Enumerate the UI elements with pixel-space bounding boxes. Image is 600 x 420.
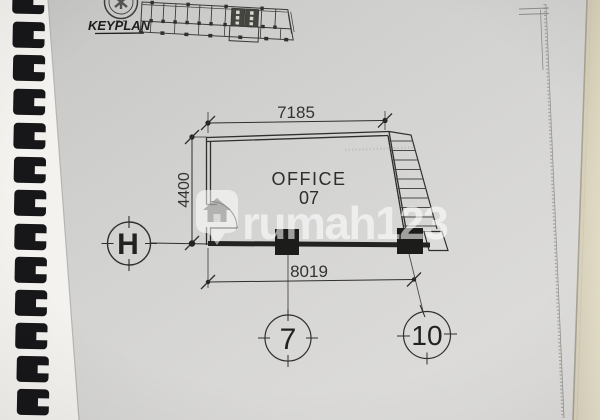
photo-vignette (0, 0, 600, 420)
floorplan-photo: KEYPLAN (0, 0, 600, 420)
photographed-floorplan-page: KEYPLAN (0, 0, 600, 420)
